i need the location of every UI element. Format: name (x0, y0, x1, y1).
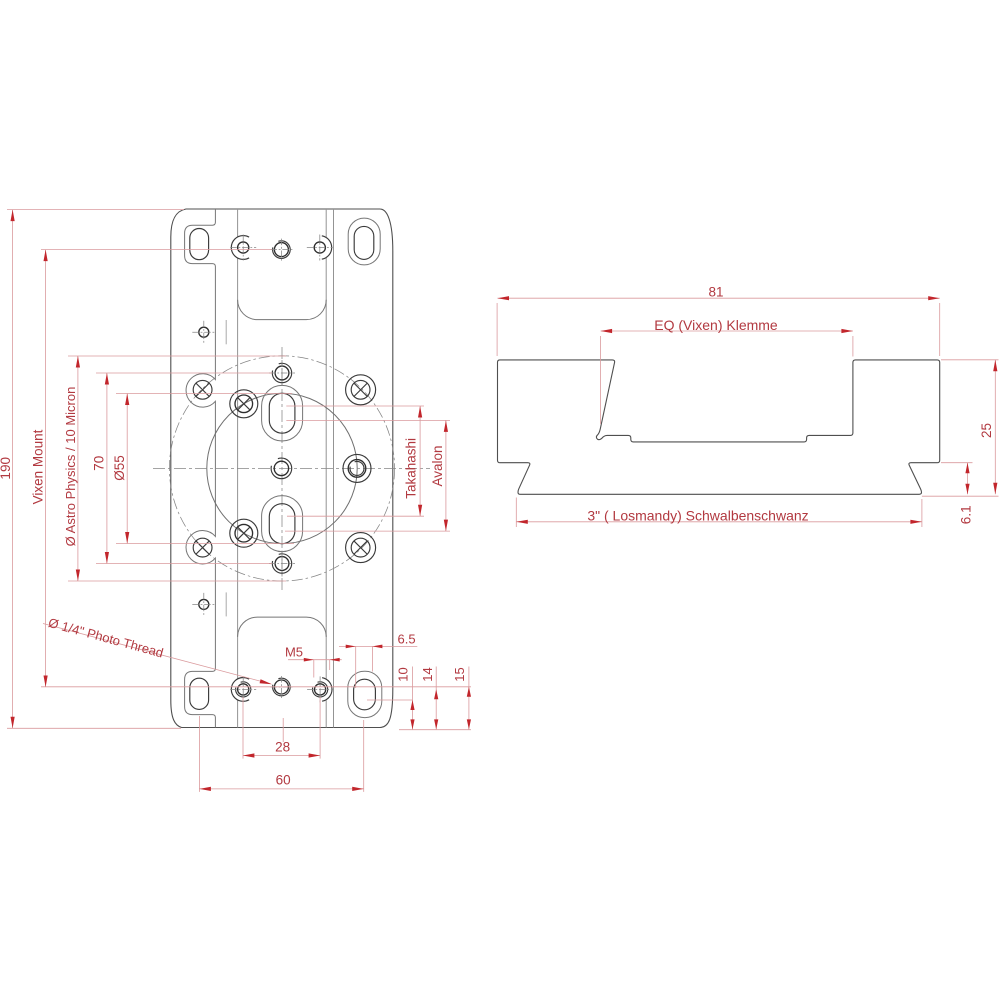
svg-text:60: 60 (276, 773, 291, 788)
svg-text:28: 28 (275, 740, 290, 755)
svg-text:M5: M5 (285, 645, 303, 660)
svg-text:Takahashi: Takahashi (404, 438, 419, 499)
svg-text:Ø55: Ø55 (112, 455, 127, 481)
svg-text:6.5: 6.5 (398, 632, 416, 647)
svg-text:25: 25 (979, 423, 994, 438)
svg-text:Avalon: Avalon (430, 445, 445, 486)
svg-text:190: 190 (0, 457, 13, 480)
svg-text:14: 14 (420, 667, 435, 681)
svg-text:EQ (Vixen) Klemme: EQ (Vixen) Klemme (654, 317, 778, 333)
svg-text:70: 70 (92, 456, 107, 471)
svg-text:81: 81 (708, 285, 723, 300)
svg-text:3" ( Losmandy) Schwalbenschwan: 3" ( Losmandy) Schwalbenschwanz (587, 508, 808, 524)
svg-text:10: 10 (396, 667, 411, 681)
svg-text:Ø Astro Physics / 10 Micron: Ø Astro Physics / 10 Micron (63, 387, 78, 547)
svg-text:Vixen Mount: Vixen Mount (31, 429, 46, 504)
svg-text:6.1: 6.1 (959, 505, 974, 524)
svg-text:15: 15 (452, 667, 467, 681)
